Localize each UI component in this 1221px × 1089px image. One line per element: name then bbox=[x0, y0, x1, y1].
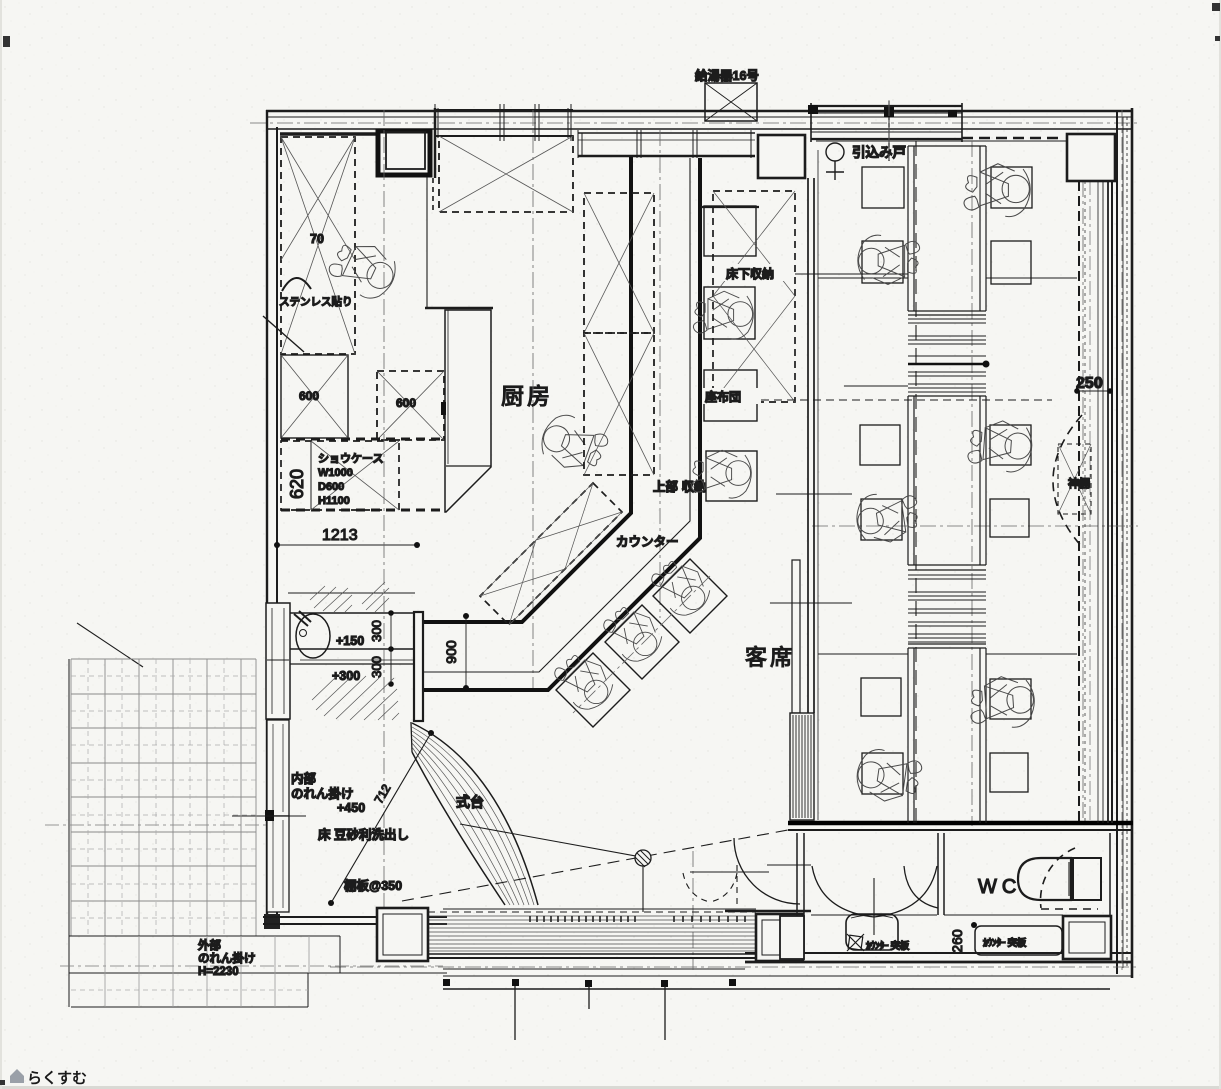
svg-text:1213: 1213 bbox=[322, 527, 358, 544]
svg-text:客席: 客席 bbox=[745, 645, 795, 670]
svg-text:厨房: 厨房 bbox=[501, 383, 553, 409]
svg-text:ｶｳﾝﾀｰ 突板: ｶｳﾝﾀｰ 突板 bbox=[866, 940, 910, 952]
svg-text:ステンレス貼り: ステンレス貼り bbox=[279, 295, 353, 308]
svg-text:座布団: 座布団 bbox=[704, 389, 741, 404]
svg-text:床下収納: 床下収納 bbox=[726, 266, 774, 281]
svg-text:H1100: H1100 bbox=[318, 495, 350, 507]
svg-text:神棚: 神棚 bbox=[1068, 476, 1090, 490]
svg-text:カウンター: カウンター bbox=[616, 534, 679, 549]
svg-text:のれん掛け: のれん掛け bbox=[291, 786, 354, 801]
svg-text:300: 300 bbox=[369, 620, 384, 642]
svg-text:式台: 式台 bbox=[456, 794, 484, 810]
svg-text:260: 260 bbox=[949, 929, 965, 953]
svg-text:ショウケース: ショウケース bbox=[318, 452, 383, 465]
svg-text:600: 600 bbox=[299, 389, 319, 403]
svg-text:外部: 外部 bbox=[197, 938, 221, 952]
svg-text:床 豆砂利洗出し: 床 豆砂利洗出し bbox=[318, 827, 409, 842]
svg-text:らくすむ: らくすむ bbox=[27, 1070, 87, 1087]
svg-text:+300: +300 bbox=[332, 669, 360, 683]
svg-text:棚板@350: 棚板@350 bbox=[344, 878, 402, 893]
svg-text:600: 600 bbox=[396, 396, 416, 410]
svg-text:+450: +450 bbox=[337, 801, 365, 815]
svg-text:620: 620 bbox=[287, 469, 307, 499]
svg-text:内部: 内部 bbox=[291, 771, 317, 786]
svg-text:H=2230: H=2230 bbox=[198, 966, 239, 978]
svg-text:D600: D600 bbox=[318, 481, 344, 493]
svg-text:250: 250 bbox=[1076, 375, 1103, 392]
svg-text:W1000: W1000 bbox=[318, 467, 353, 479]
svg-text:70: 70 bbox=[310, 232, 324, 246]
svg-text:給湯器16号: 給湯器16号 bbox=[695, 68, 759, 83]
svg-text:引込み戸: 引込み戸 bbox=[852, 144, 906, 160]
svg-text:WC: WC bbox=[978, 876, 1021, 898]
svg-text:のれん掛け: のれん掛け bbox=[198, 951, 256, 965]
svg-text:300: 300 bbox=[369, 656, 384, 678]
svg-text:900: 900 bbox=[443, 640, 459, 664]
svg-text:ｶｳﾝﾀｰ 突板: ｶｳﾝﾀｰ 突板 bbox=[983, 937, 1027, 949]
svg-text:+150: +150 bbox=[336, 634, 364, 648]
